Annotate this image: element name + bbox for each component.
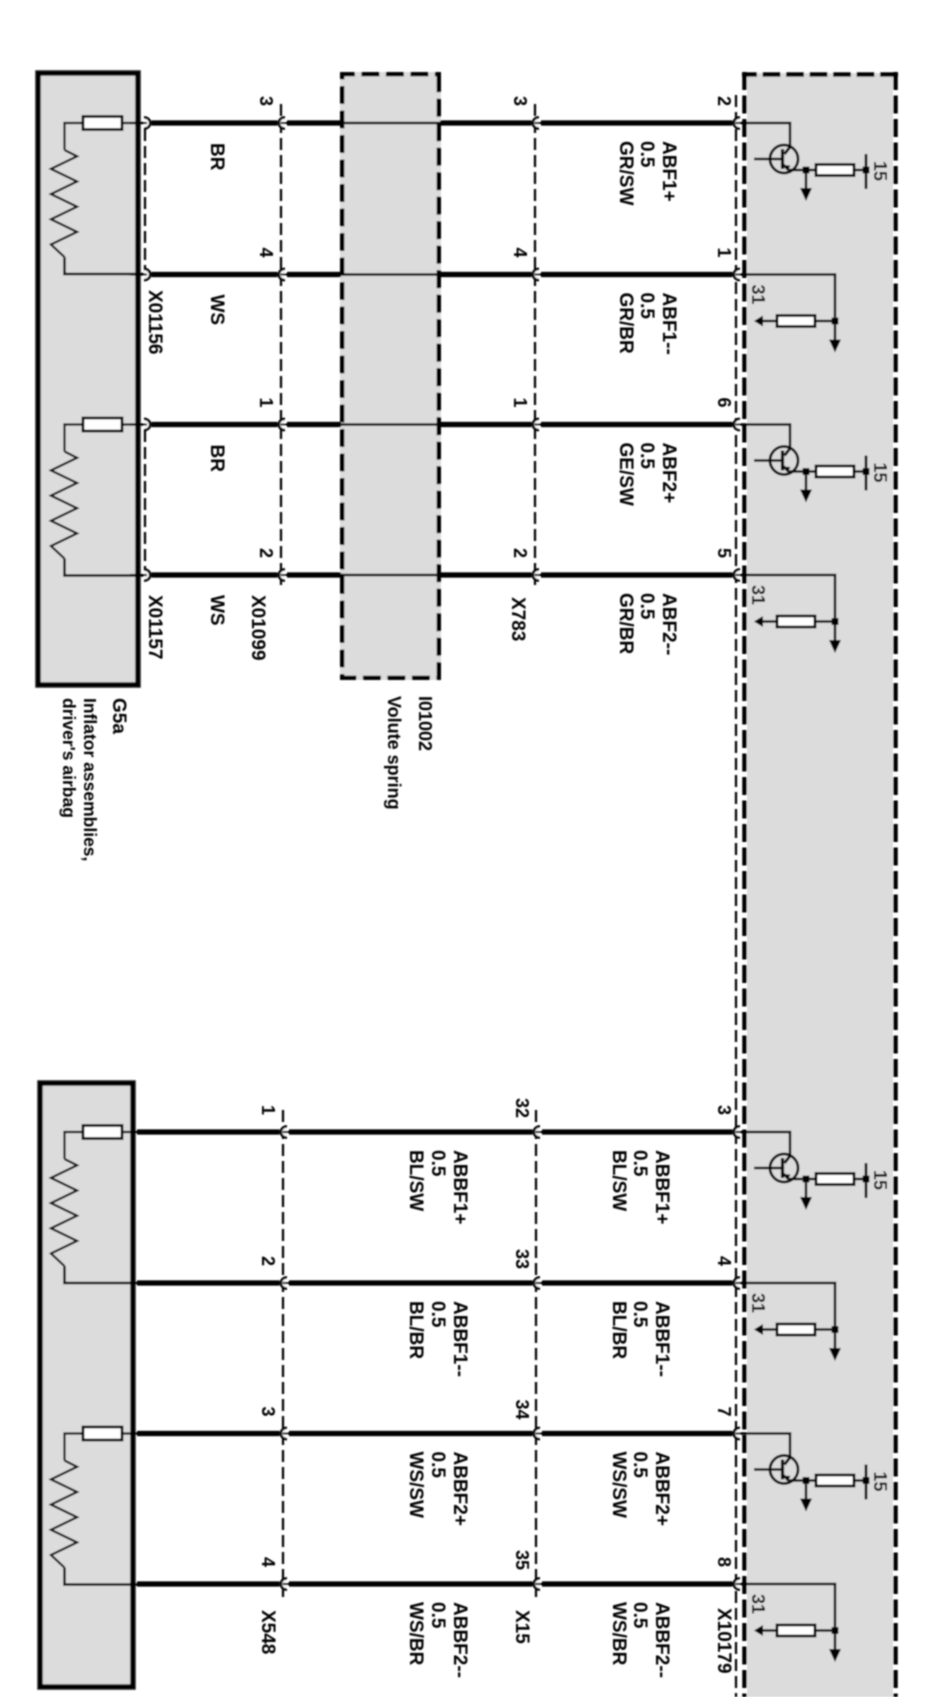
svg-text:0.5: 0.5 xyxy=(427,1301,448,1328)
svg-text:35: 35 xyxy=(512,1550,532,1570)
svg-text:0.5: 0.5 xyxy=(629,1150,650,1177)
svg-text:Inflator assemblies,: Inflator assemblies, xyxy=(80,698,100,861)
svg-text:3: 3 xyxy=(510,96,530,106)
svg-text:X01156: X01156 xyxy=(144,290,165,354)
svg-text:33: 33 xyxy=(512,1249,532,1269)
svg-text:ABBF2--: ABBF2-- xyxy=(651,1602,672,1678)
svg-text:ABBF1+: ABBF1+ xyxy=(651,1150,672,1224)
svg-text:X548: X548 xyxy=(257,1610,278,1654)
svg-text:ABBF2+: ABBF2+ xyxy=(651,1452,672,1526)
svg-text:0.5: 0.5 xyxy=(636,141,657,168)
svg-text:31: 31 xyxy=(748,284,768,304)
svg-text:ABBF1--: ABBF1-- xyxy=(449,1301,470,1377)
svg-text:0.5: 0.5 xyxy=(636,593,657,620)
svg-text:X783: X783 xyxy=(507,597,528,641)
svg-text:1: 1 xyxy=(510,397,530,407)
svg-text:WS/SW: WS/SW xyxy=(608,1452,629,1519)
svg-text:WS/BR: WS/BR xyxy=(405,1602,426,1666)
svg-text:7: 7 xyxy=(714,1406,734,1416)
svg-text:31: 31 xyxy=(748,585,768,605)
svg-text:34: 34 xyxy=(512,1399,532,1419)
svg-text:WS: WS xyxy=(206,595,227,626)
svg-text:0.5: 0.5 xyxy=(427,1452,448,1479)
svg-text:8: 8 xyxy=(714,1557,734,1567)
svg-text:BR: BR xyxy=(206,445,227,473)
svg-text:15: 15 xyxy=(870,462,890,482)
svg-text:0.5: 0.5 xyxy=(636,293,657,320)
svg-text:ABF1+: ABF1+ xyxy=(658,141,679,202)
svg-text:ABF2+: ABF2+ xyxy=(658,443,679,504)
svg-text:15: 15 xyxy=(870,1170,890,1190)
svg-text:4: 4 xyxy=(510,247,530,257)
svg-text:4: 4 xyxy=(258,1557,278,1567)
svg-text:WS/BR: WS/BR xyxy=(608,1602,629,1666)
svg-text:32: 32 xyxy=(512,1098,532,1118)
svg-text:X15: X15 xyxy=(511,1610,532,1644)
svg-text:WS: WS xyxy=(206,295,227,326)
svg-text:ABBF1--: ABBF1-- xyxy=(651,1301,672,1377)
svg-text:BL/SW: BL/SW xyxy=(608,1150,629,1211)
svg-text:G5a: G5a xyxy=(108,698,129,734)
svg-text:X01099: X01099 xyxy=(247,595,268,661)
svg-text:BR: BR xyxy=(206,143,227,171)
svg-text:3: 3 xyxy=(258,1406,278,1416)
svg-text:ABBF2--: ABBF2-- xyxy=(449,1602,470,1678)
svg-text:6: 6 xyxy=(714,397,734,407)
svg-text:1: 1 xyxy=(258,1105,278,1115)
svg-text:2: 2 xyxy=(510,548,530,558)
svg-text:0.5: 0.5 xyxy=(427,1602,448,1629)
svg-text:X01157: X01157 xyxy=(144,595,165,659)
svg-text:0.5: 0.5 xyxy=(636,443,657,470)
svg-text:X10179: X10179 xyxy=(713,1608,734,1674)
svg-text:1: 1 xyxy=(714,247,734,257)
svg-text:driver's airbag: driver's airbag xyxy=(59,698,79,818)
svg-text:5: 5 xyxy=(714,548,734,558)
svg-text:15: 15 xyxy=(870,161,890,181)
svg-text:Volute spring: Volute spring xyxy=(384,696,404,810)
svg-text:GR/BR: GR/BR xyxy=(615,293,636,355)
svg-text:31: 31 xyxy=(748,1293,768,1313)
svg-text:3: 3 xyxy=(256,96,276,106)
svg-text:3: 3 xyxy=(714,1105,734,1115)
svg-text:GE/SW: GE/SW xyxy=(615,443,636,506)
svg-text:BL/BR: BL/BR xyxy=(608,1301,629,1359)
svg-text:4: 4 xyxy=(256,247,276,257)
svg-text:4: 4 xyxy=(714,1256,734,1266)
svg-text:GR/SW: GR/SW xyxy=(615,141,636,205)
svg-text:BL/BR: BL/BR xyxy=(405,1301,426,1359)
svg-text:2: 2 xyxy=(256,548,276,558)
svg-text:ABBF1+: ABBF1+ xyxy=(449,1150,470,1224)
svg-text:0.5: 0.5 xyxy=(427,1150,448,1177)
svg-text:WS/SW: WS/SW xyxy=(405,1452,426,1519)
svg-text:0.5: 0.5 xyxy=(629,1301,650,1328)
svg-text:0.5: 0.5 xyxy=(629,1452,650,1479)
svg-text:15: 15 xyxy=(870,1471,890,1491)
svg-text:ABF2--: ABF2-- xyxy=(658,593,679,655)
svg-text:ABBF2+: ABBF2+ xyxy=(449,1452,470,1526)
svg-text:2: 2 xyxy=(714,96,734,106)
svg-text:0.5: 0.5 xyxy=(629,1602,650,1629)
svg-text:1: 1 xyxy=(256,397,276,407)
svg-text:BL/SW: BL/SW xyxy=(405,1150,426,1211)
svg-text:2: 2 xyxy=(258,1256,278,1266)
svg-text:I01002: I01002 xyxy=(415,696,435,751)
svg-text:31: 31 xyxy=(748,1594,768,1614)
svg-text:ABF1--: ABF1-- xyxy=(658,293,679,355)
svg-text:GR/BR: GR/BR xyxy=(615,593,636,655)
